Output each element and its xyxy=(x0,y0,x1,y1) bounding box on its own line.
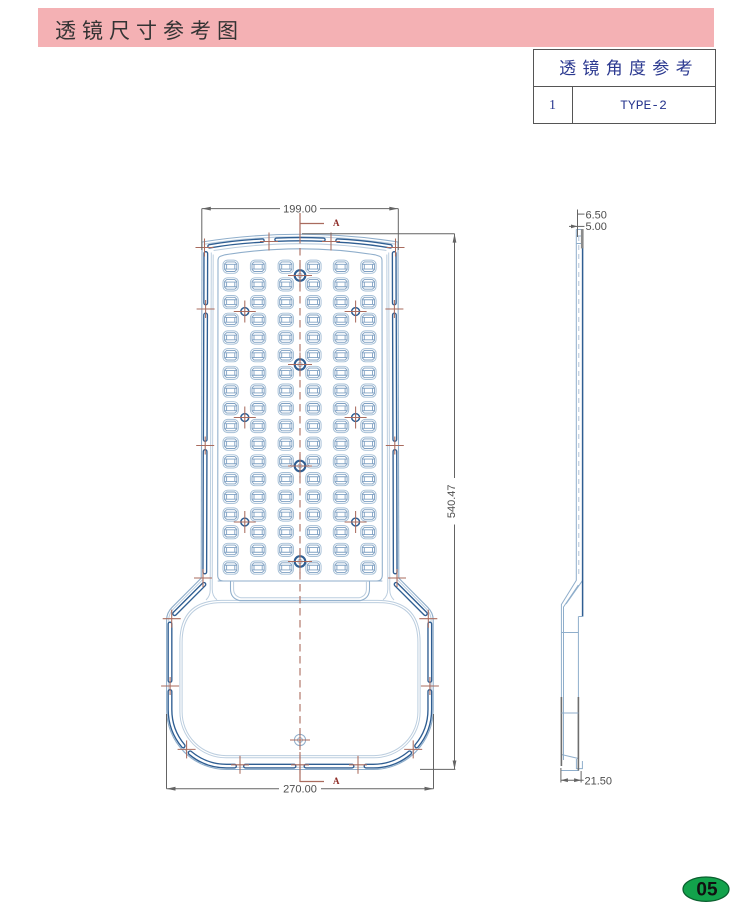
svg-text:540.47: 540.47 xyxy=(446,484,458,518)
svg-text:05: 05 xyxy=(696,880,718,901)
svg-text:270.00: 270.00 xyxy=(283,784,317,796)
svg-text:A: A xyxy=(333,776,340,786)
svg-text:A: A xyxy=(333,218,340,228)
svg-text:21.50: 21.50 xyxy=(585,776,613,788)
svg-text:5.00: 5.00 xyxy=(586,221,607,233)
svg-text:6.50: 6.50 xyxy=(586,209,607,221)
